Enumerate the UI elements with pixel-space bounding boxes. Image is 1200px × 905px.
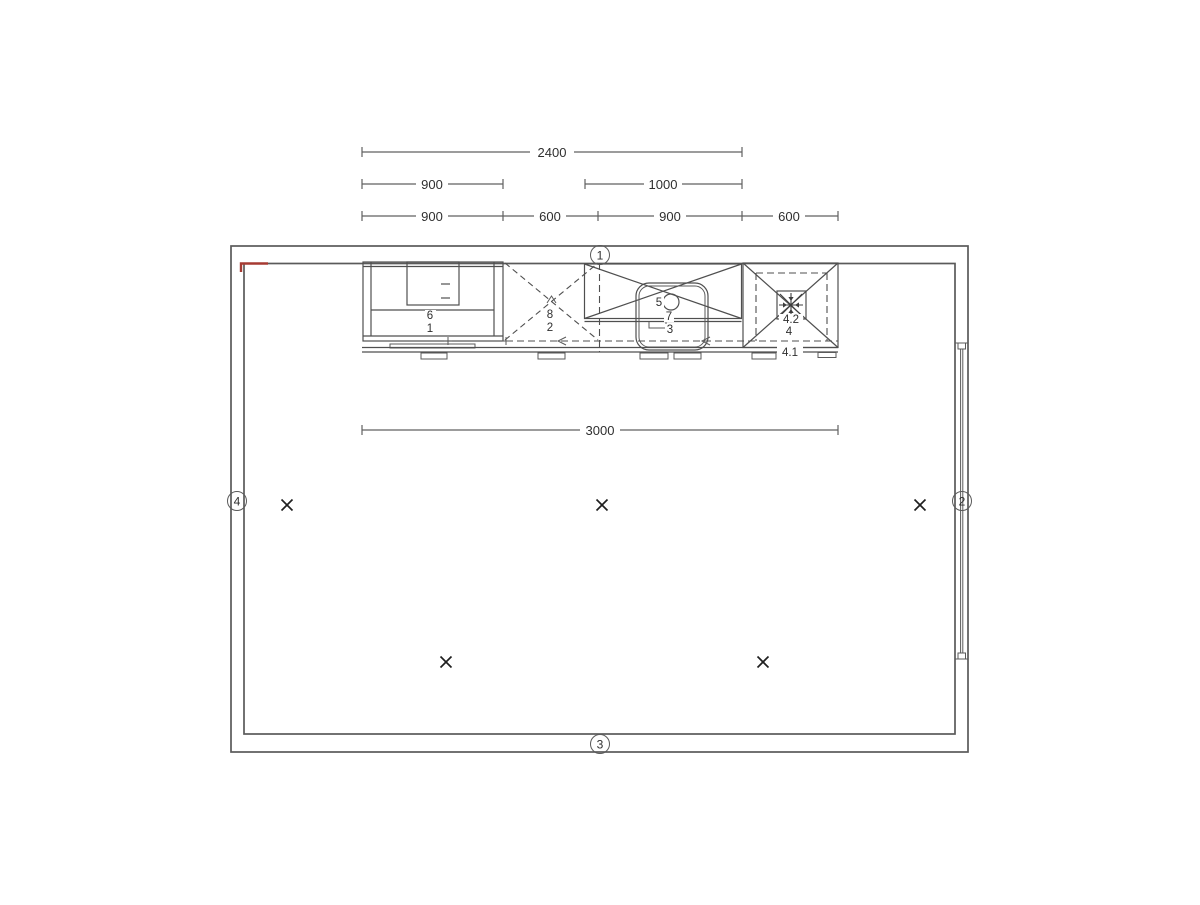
light-x-icon [915, 500, 926, 511]
door-handle [538, 353, 565, 359]
light-x-icon [758, 657, 769, 668]
dim-900-left-upper: 900 [362, 177, 503, 192]
door-handle [674, 353, 701, 359]
dim-row-segments: 900 600 900 600 [362, 209, 838, 224]
wall-marker-left-label: 4 [234, 495, 241, 509]
light-x-icon [597, 500, 608, 511]
origin-corner-marker [241, 264, 268, 273]
range-upper-label: 6 [427, 310, 433, 322]
dimension-rows: 2400 900 1000 900 600 [362, 145, 838, 224]
floor-plan-canvas: 2400 900 1000 900 600 [0, 0, 1200, 900]
door-handle [640, 353, 668, 359]
sink-basin-label: 7 [666, 311, 672, 323]
dim-900-upper-label: 900 [421, 177, 443, 192]
sink-tap-label: 5 [656, 297, 662, 309]
kitchen-run: 6 1 8 2 5 [362, 262, 838, 359]
range-cooker: 6 1 [363, 262, 503, 348]
extractor-unit-label: 4 [786, 326, 793, 338]
light-markers [282, 500, 926, 668]
wall-marker-top: 1 [591, 246, 610, 265]
dim-600a-label: 600 [539, 209, 561, 224]
dim-3000: 3000 [362, 423, 838, 438]
extractor-base-label: 4.1 [782, 347, 798, 359]
door-handle [752, 353, 776, 359]
dim-2400-label: 2400 [538, 145, 567, 160]
sink-unit: 5 7 3 [585, 264, 742, 350]
drain-icon [649, 322, 666, 328]
light-x-icon [441, 657, 452, 668]
wall-marker-right-label: 2 [959, 495, 966, 509]
door-handle [818, 353, 836, 358]
range-lower-label: 1 [427, 323, 433, 335]
wall-marker-bottom: 3 [591, 735, 610, 754]
tap-hole-icon [663, 294, 679, 310]
dim-600b-label: 600 [778, 209, 800, 224]
oven-icon [407, 262, 459, 305]
sink-drain-label: 3 [667, 324, 673, 336]
dim-3000-label: 3000 [586, 423, 615, 438]
dim-1000: 1000 [585, 177, 742, 192]
door-handle [421, 353, 447, 359]
appliance-upper-label: 8 [547, 309, 553, 321]
extractor-unit: 4.2 4 [743, 263, 838, 348]
floor-plan-page: 2400 900 1000 900 600 [0, 0, 1200, 900]
dim-900b-label: 900 [659, 209, 681, 224]
appliance-space-dashed: 8 2 [505, 263, 600, 352]
dim-1000-label: 1000 [649, 177, 678, 192]
light-x-icon [282, 500, 293, 511]
extractor-fan-label: 4.2 [783, 314, 799, 326]
dim-900a-label: 900 [421, 209, 443, 224]
appliance-lower-label: 2 [547, 322, 553, 334]
wall-marker-bottom-label: 3 [597, 738, 604, 752]
dim-2400: 2400 [362, 145, 742, 160]
wall-marker-top-label: 1 [597, 249, 604, 263]
